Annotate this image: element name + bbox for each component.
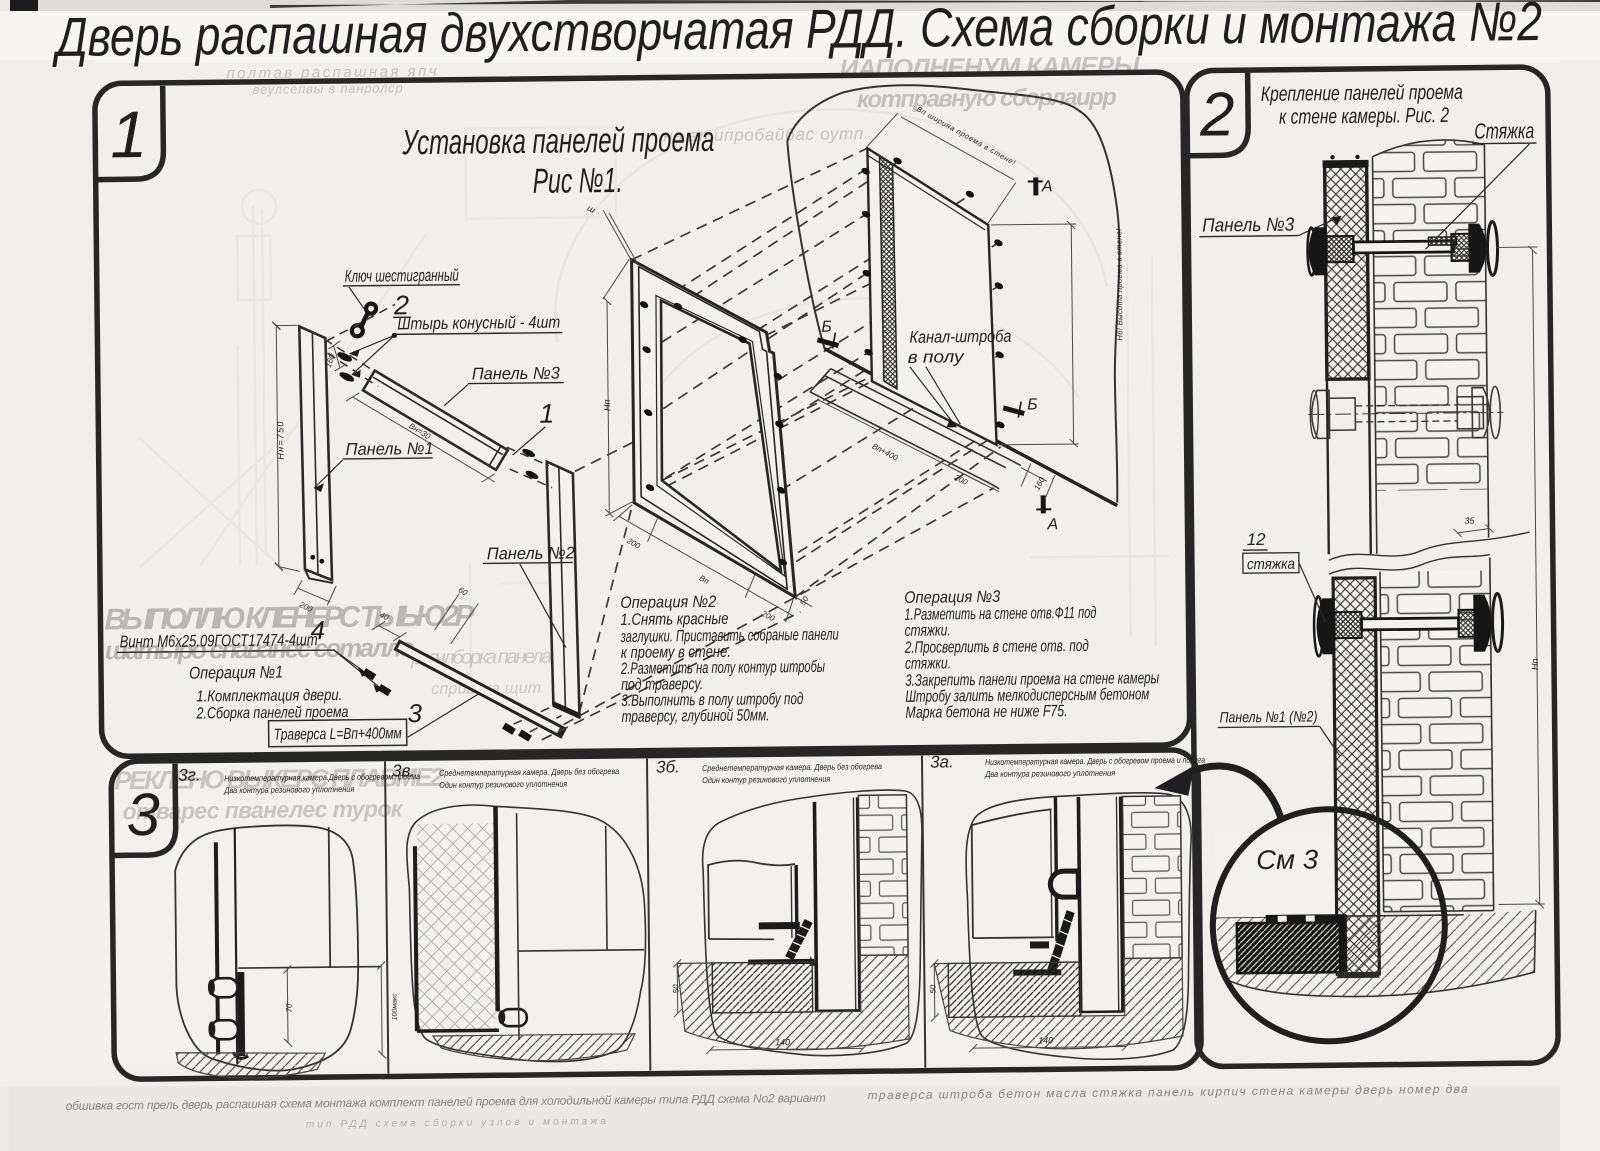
svg-text:Крепление панелей проема: Крепление панелей проема (1261, 81, 1463, 106)
svg-text:1.Комплектация двери.: 1.Комплектация двери. (196, 687, 342, 706)
svg-text:140: 140 (1038, 1035, 1053, 1045)
svg-text:Установка панелей проема: Установка панелей проема (401, 120, 714, 162)
svg-text:Низкотемпературная камера.Двер: Низкотемпературная камера.Дверь с обогре… (224, 771, 420, 783)
svg-text:50: 50 (928, 984, 937, 994)
svg-text:100макс: 100макс (391, 993, 398, 1021)
svg-text:отварес пванелес турок: отварес пванелес турок (122, 795, 404, 824)
svg-text:Среднетемпературная камера. Дв: Среднетемпературная камера. Дверь без об… (439, 766, 619, 778)
svg-text:Панель №2: Панель №2 (487, 543, 576, 563)
svg-text:3: 3 (126, 781, 160, 848)
svg-text:Один контур резинового уплотне: Один контур резинового уплотнения (439, 779, 567, 790)
svg-text:Винт М6х25.09ГОСТ17474-4шт: Винт М6х25.09ГОСТ17474-4шт (120, 630, 318, 651)
svg-text:3б.: 3б. (656, 757, 680, 776)
svg-text:стяжки.: стяжки. (905, 654, 951, 672)
svg-text:4: 4 (310, 615, 325, 645)
svg-text:70: 70 (285, 1003, 294, 1013)
svg-text:3в.: 3в. (392, 761, 415, 780)
svg-text:траверсу, глубиной 50мм.: траверсу, глубиной 50мм. (621, 706, 769, 726)
svg-text:1: 1 (539, 399, 554, 429)
svg-text:Стяжка: Стяжка (1474, 118, 1534, 144)
svg-text:3а.: 3а. (930, 752, 954, 771)
svg-text:в полу: в полу (908, 347, 966, 367)
svg-text:Среднетемпературная камера. Дв: Среднетемпературная камера. Дверь без об… (702, 761, 882, 773)
svg-text:См 3: См 3 (1256, 844, 1318, 875)
svg-text:Ключ шестигранный: Ключ шестигранный (345, 266, 460, 286)
svg-text:35: 35 (1464, 516, 1475, 526)
svg-text:стяжки.: стяжки. (905, 621, 951, 639)
svg-text:2: 2 (1199, 80, 1235, 149)
svg-text:Hп: Hп (1530, 658, 1540, 670)
svg-text:1: 1 (110, 97, 148, 171)
svg-text:Два контура резинового уплотне: Два контура резинового уплотнения (984, 768, 1115, 779)
svg-text:Б: Б (1027, 396, 1038, 413)
svg-text:Траверса L=Вп+400мм: Траверса L=Вп+400мм (274, 725, 402, 743)
svg-text:Один контур резинового уплотне: Один контур резинового уплотнения (702, 774, 830, 785)
svg-text:140: 140 (775, 1037, 790, 1047)
svg-text:50: 50 (671, 984, 680, 994)
svg-text:3г.: 3г. (178, 765, 201, 784)
svg-text:Нб! Высота проема в стене!: Нб! Высота проема в стене! (1114, 228, 1124, 341)
svg-text:Панель №1 (№2): Панель №1 (№2) (1219, 708, 1317, 726)
svg-text:Нп: Нп (602, 400, 612, 412)
svg-text:12: 12 (1247, 530, 1267, 549)
svg-text:Канал-штроба: Канал-штроба (909, 327, 1011, 347)
svg-text:3: 3 (407, 698, 422, 728)
svg-text:Рис №1.: Рис №1. (533, 161, 623, 201)
svg-text:Hн=750: Hн=750 (275, 422, 285, 460)
svg-text:Панель №3: Панель №3 (1202, 215, 1295, 237)
svg-text:Б: Б (821, 319, 832, 336)
svg-text:А: А (1041, 178, 1053, 195)
svg-text:стяжка: стяжка (1247, 556, 1295, 574)
svg-text:Панель №3: Панель №3 (472, 364, 561, 384)
svg-text:Два контура резинового уплотне: Два контура резинового уплотнения (223, 784, 354, 795)
svg-text:к стене камеры. Рис. 2: к стене камеры. Рис. 2 (1279, 104, 1449, 129)
svg-text:Марка бетона не ниже F75.: Марка бетона не ниже F75. (905, 702, 1067, 722)
svg-text:Штырь конусный - 4шт: Штырь конусный - 4шт (397, 313, 560, 334)
svg-text:Операция №1: Операция №1 (189, 663, 283, 683)
svg-text:Панель №1: Панель №1 (346, 439, 434, 459)
svg-text:А: А (1046, 516, 1058, 533)
